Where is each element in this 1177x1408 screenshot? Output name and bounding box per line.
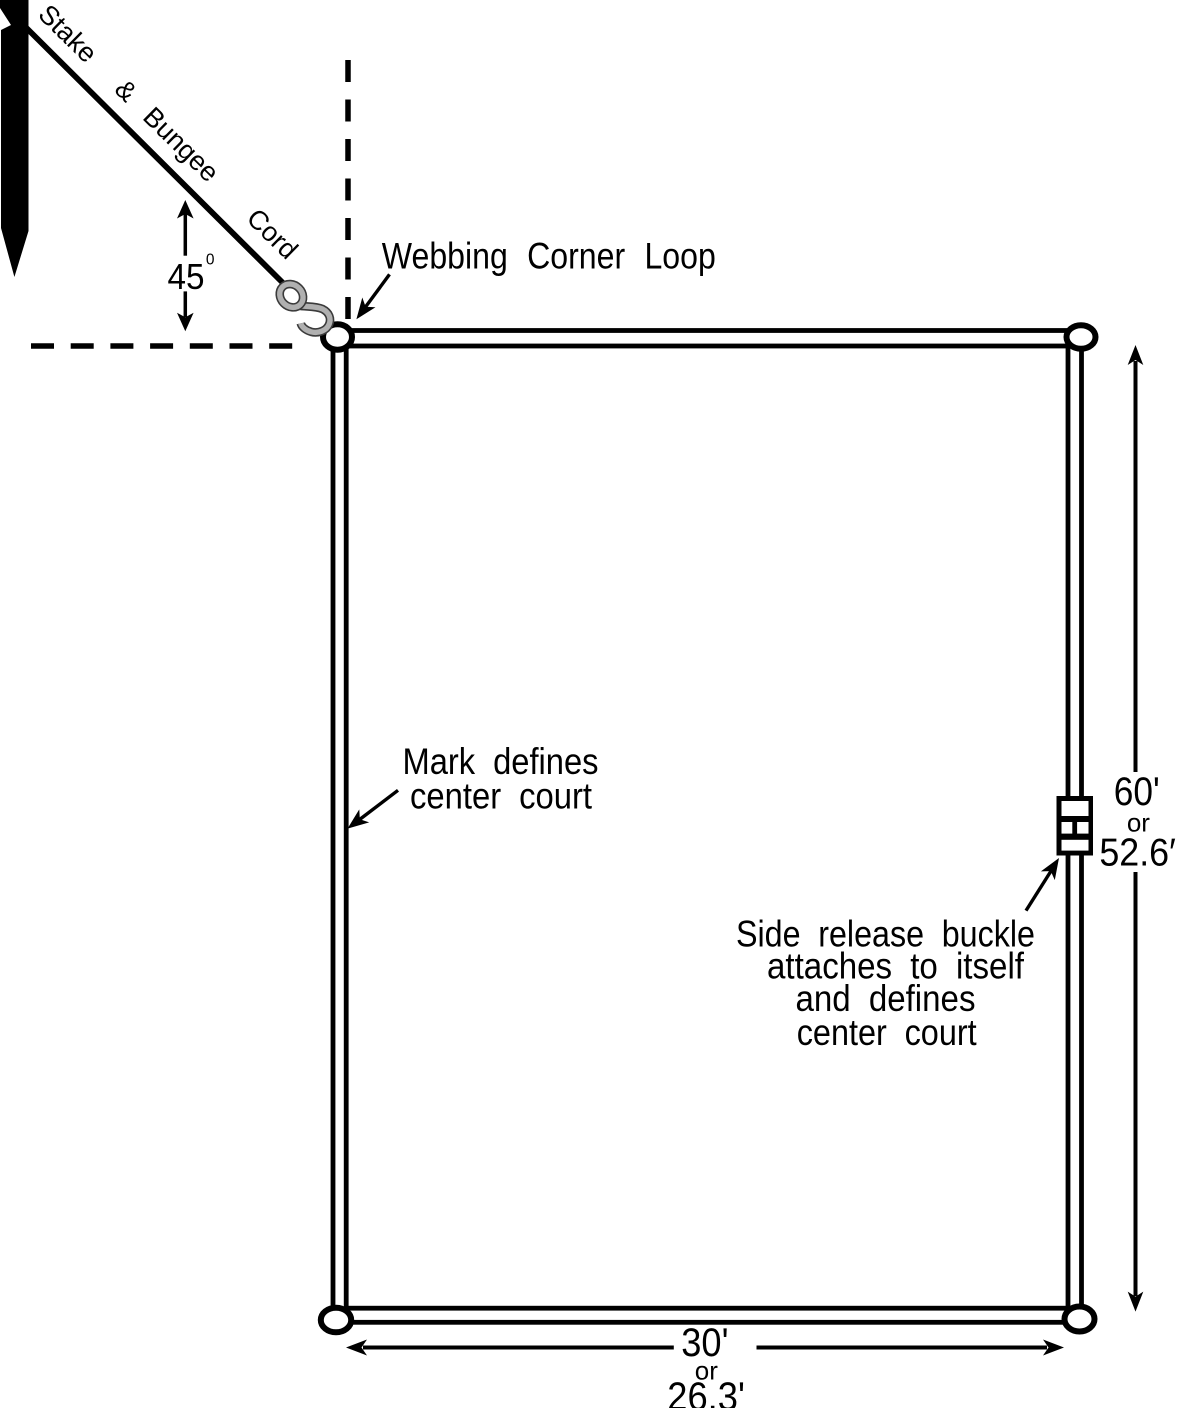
svg-text:center court: center court [410,776,593,817]
svg-text:center court: center court [797,1012,978,1053]
svg-text:Webbing Corner Loop: Webbing Corner Loop [382,236,716,277]
svg-text:0: 0 [206,252,215,269]
svg-text:26.3': 26.3' [667,1375,745,1408]
svg-text:52.6′: 52.6′ [1099,832,1176,875]
svg-text:45: 45 [168,256,205,297]
